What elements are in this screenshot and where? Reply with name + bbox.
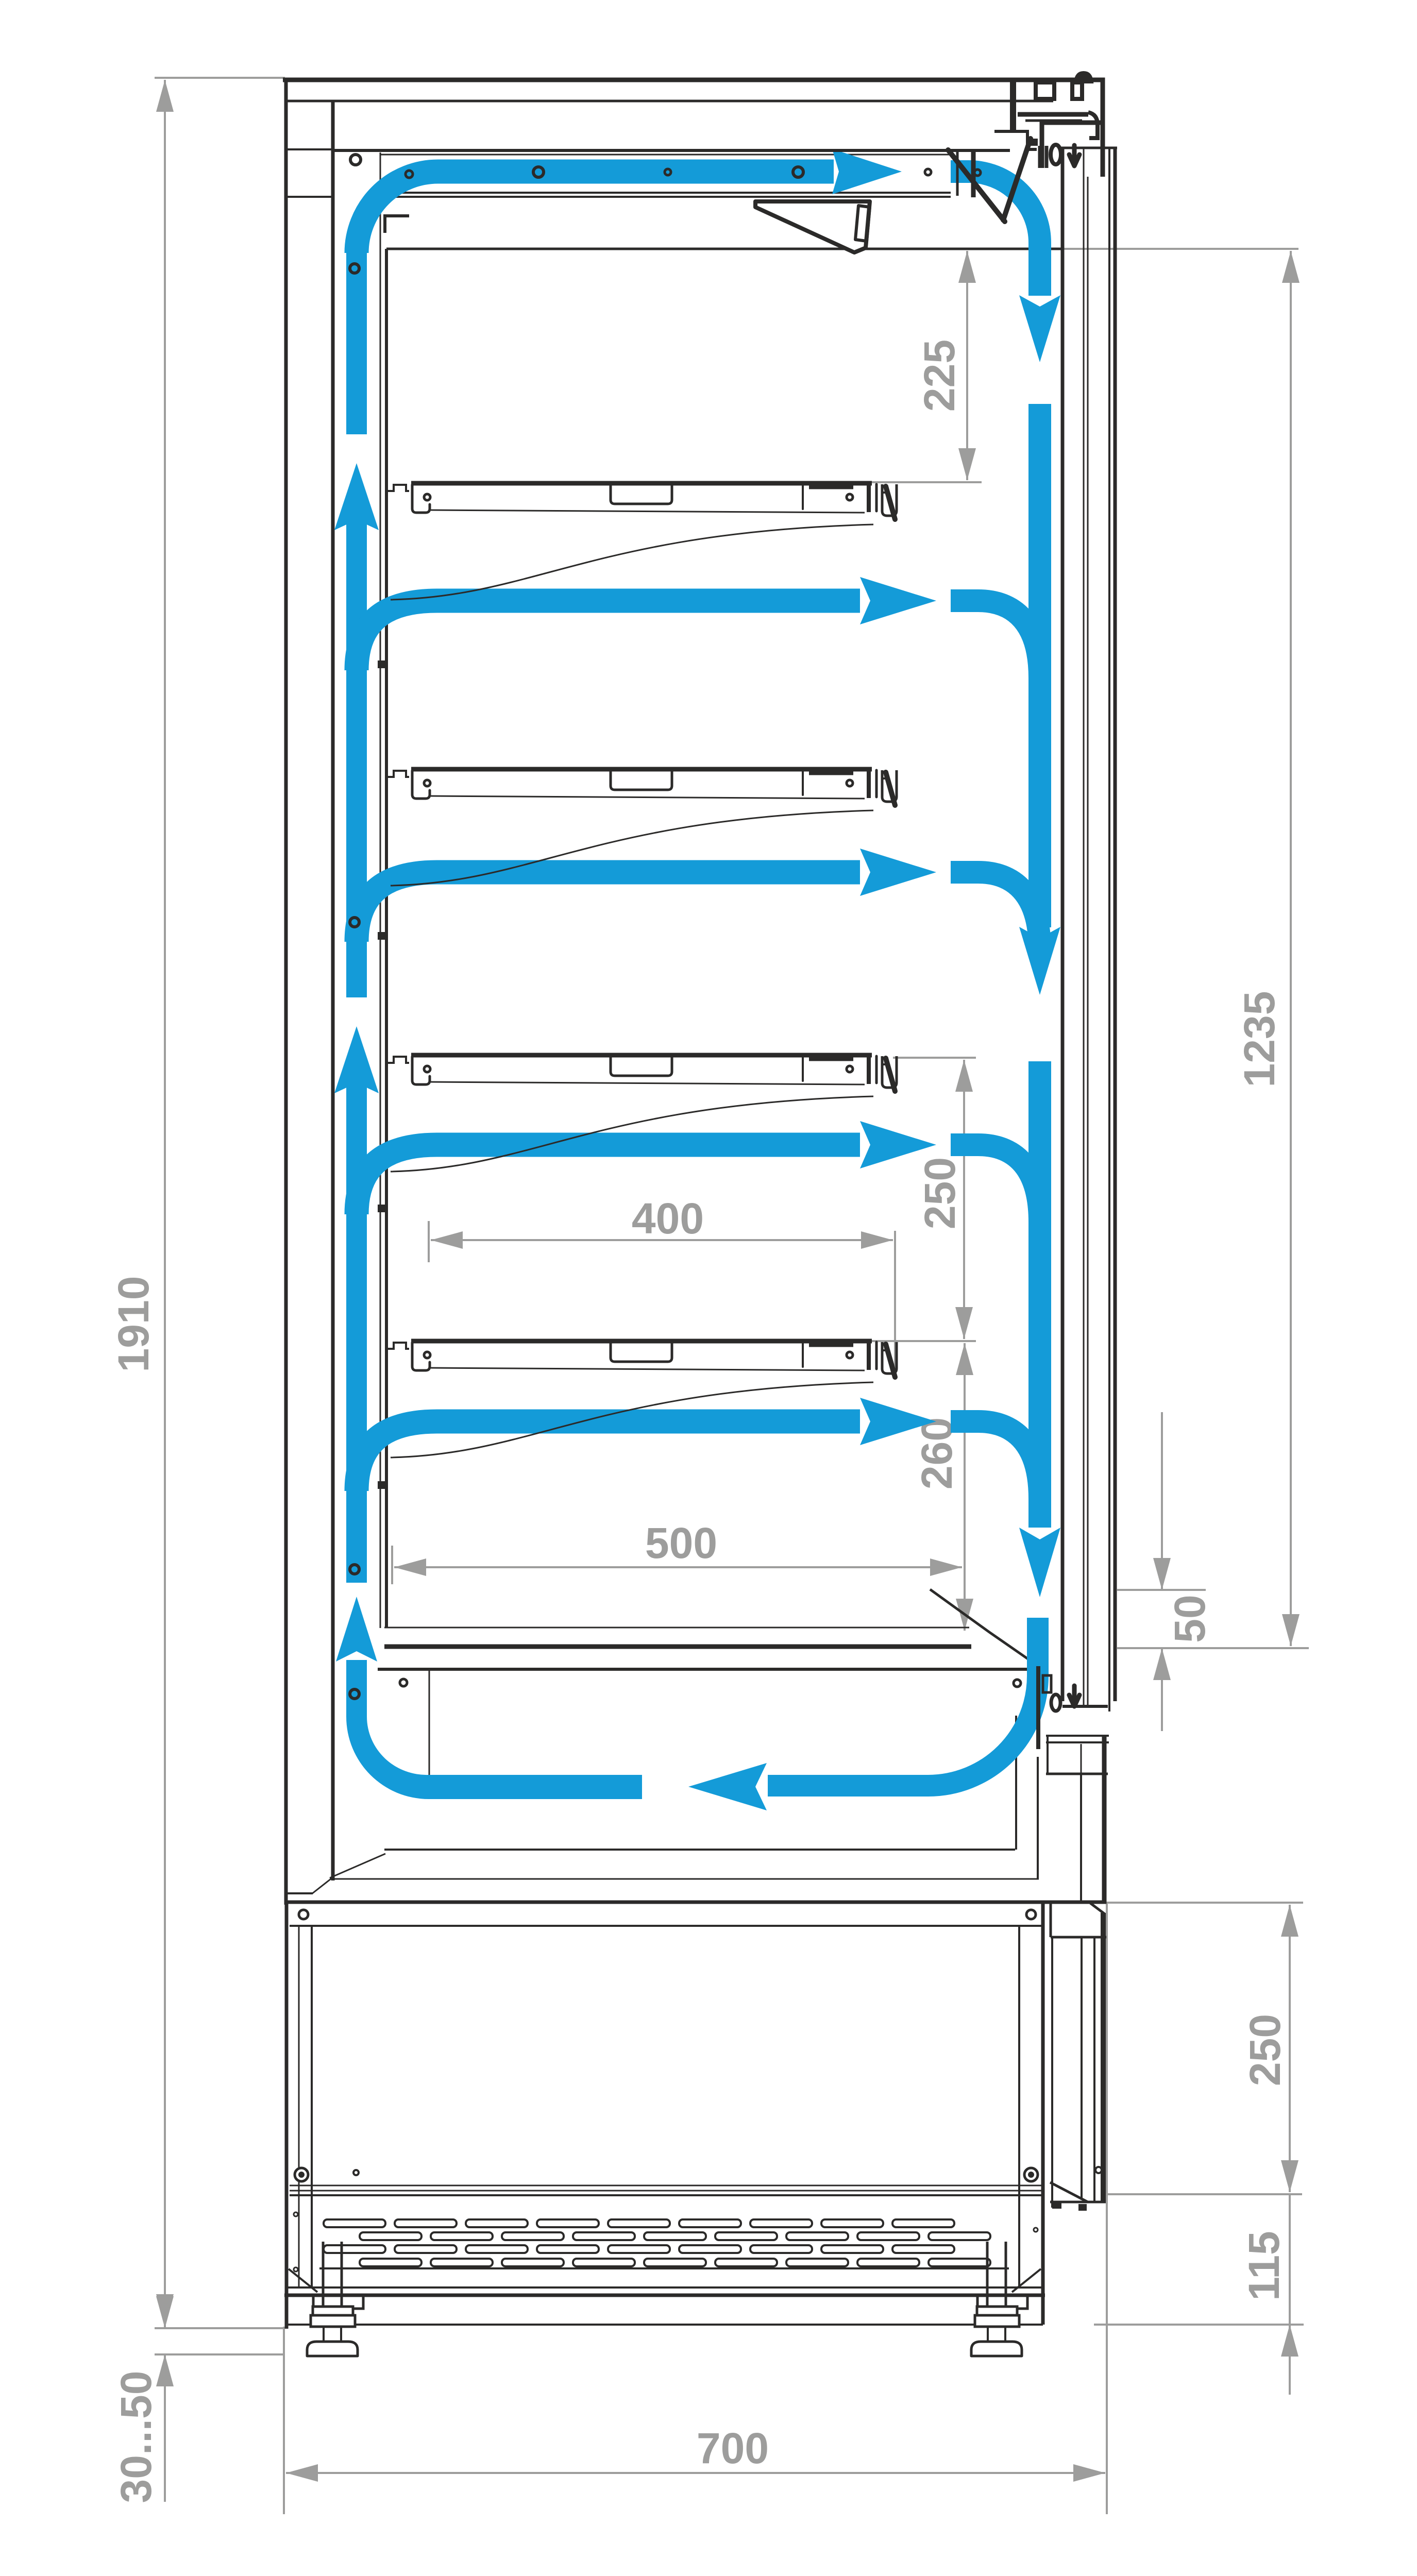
svg-text:1235: 1235 (1235, 991, 1284, 1088)
svg-text:1910: 1910 (109, 1276, 158, 1372)
svg-text:30...50: 30...50 (112, 2371, 160, 2503)
svg-text:250: 250 (1241, 2014, 1289, 2086)
svg-text:250: 250 (916, 1157, 964, 1229)
svg-text:700: 700 (697, 2424, 769, 2472)
svg-text:400: 400 (632, 1194, 704, 1243)
svg-text:225: 225 (915, 340, 964, 412)
svg-text:115: 115 (1240, 2231, 1288, 2301)
svg-text:500: 500 (645, 1519, 717, 1567)
svg-text:50: 50 (1166, 1595, 1214, 1642)
